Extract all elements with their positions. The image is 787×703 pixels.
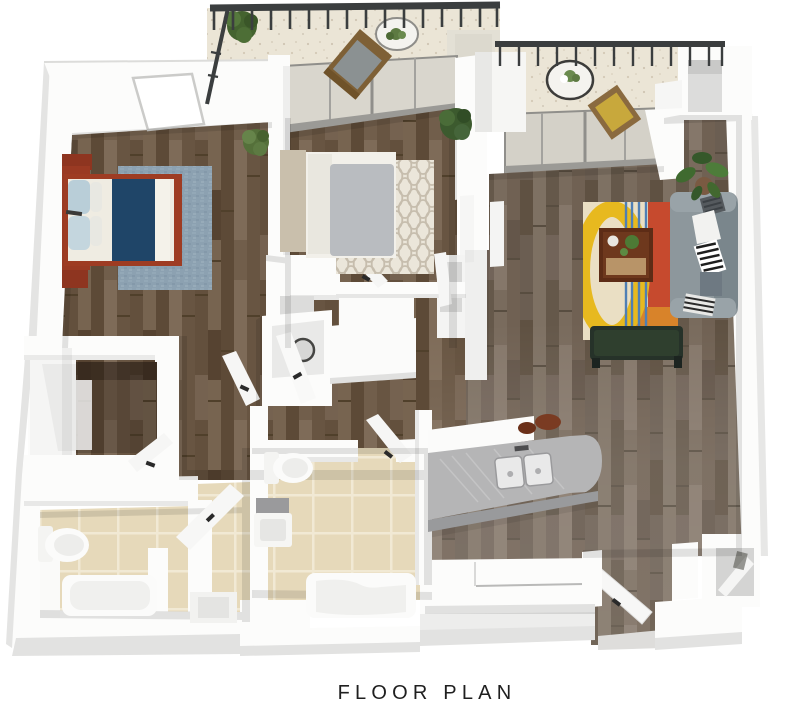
svg-text:FLOOR PLAN: FLOOR PLAN <box>338 682 517 703</box>
